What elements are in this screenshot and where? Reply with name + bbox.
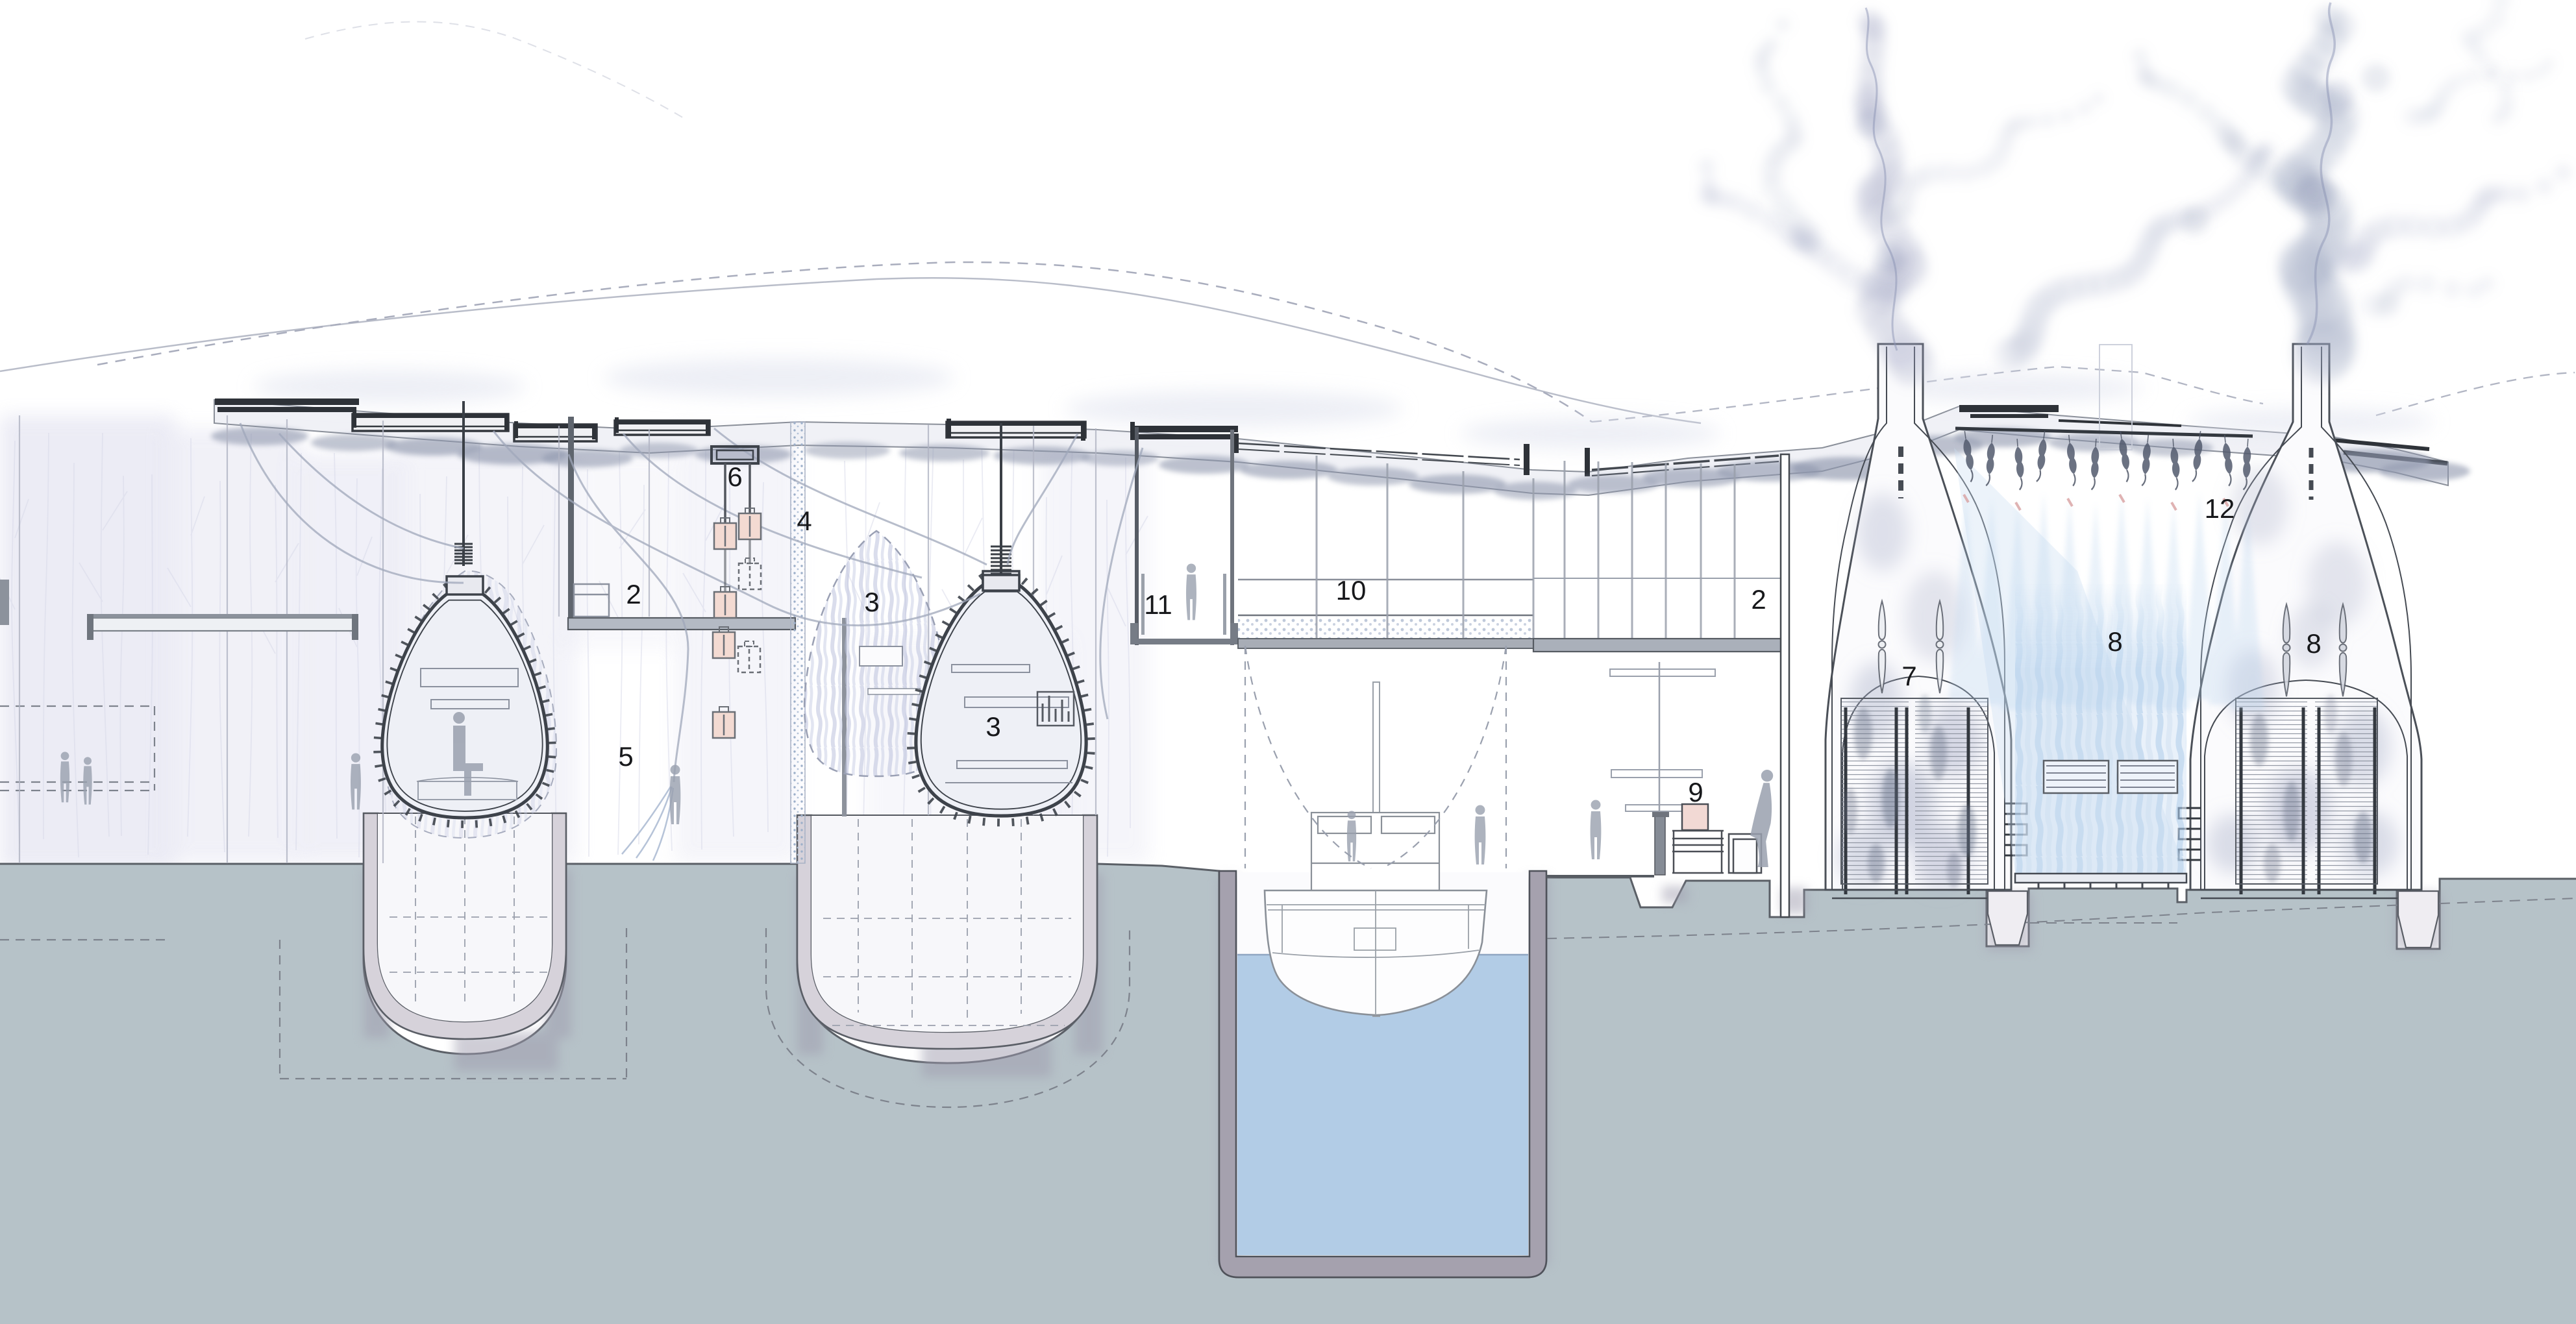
svg-text:7: 7	[1901, 661, 1916, 691]
svg-text:11: 11	[1144, 589, 1172, 620]
svg-text:4: 4	[797, 506, 811, 536]
svg-text:12: 12	[2205, 493, 2235, 524]
svg-text:5: 5	[618, 741, 633, 772]
svg-text:9: 9	[1688, 777, 1703, 807]
svg-text:3: 3	[985, 711, 1000, 742]
svg-text:8: 8	[2306, 628, 2321, 659]
svg-text:10: 10	[1336, 575, 1367, 606]
svg-text:2: 2	[1751, 584, 1766, 615]
svg-text:2: 2	[626, 579, 641, 609]
svg-text:8: 8	[2107, 626, 2122, 657]
svg-text:3: 3	[864, 587, 879, 617]
svg-text:6: 6	[727, 461, 742, 492]
